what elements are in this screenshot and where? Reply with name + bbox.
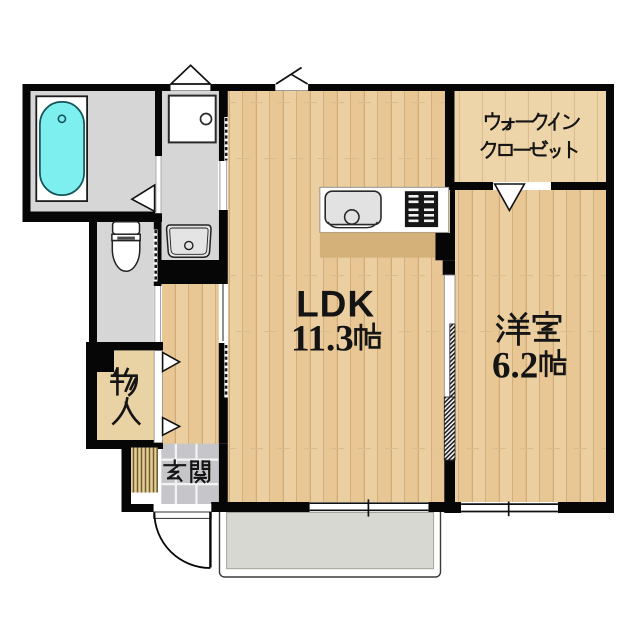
svg-text:11.3: 11.3 [291, 319, 354, 360]
svg-text:6.2: 6.2 [492, 346, 538, 387]
